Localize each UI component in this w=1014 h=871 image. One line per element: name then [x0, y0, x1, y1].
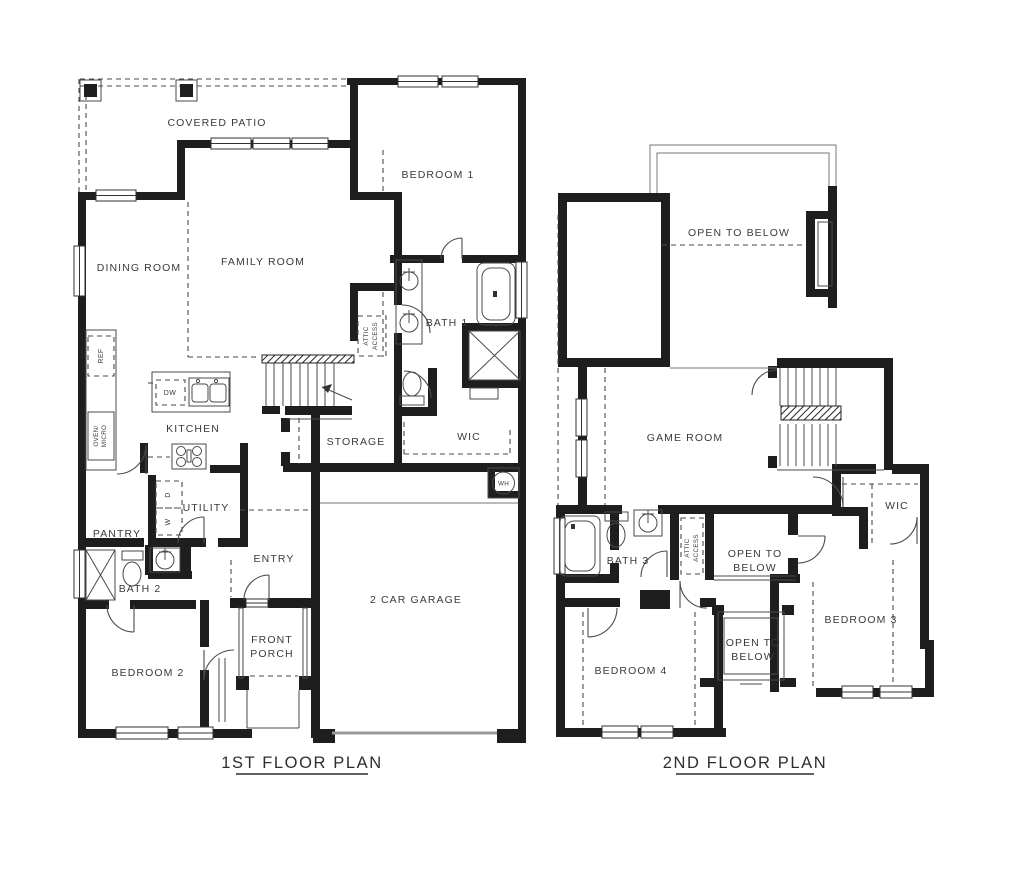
room-label-bath1: BATH 1: [426, 317, 469, 329]
window: [178, 727, 213, 739]
room-label-bedroom4: BEDROOM 4: [595, 665, 668, 677]
room-label-open-mid: OPEN TO: [728, 548, 783, 560]
room-label-bath3: BATH 3: [607, 555, 650, 567]
patio-post: [84, 84, 97, 97]
window: [576, 399, 587, 436]
room-label-front-porch: FRONT: [251, 634, 293, 646]
room-label-front-porch: PORCH: [250, 648, 293, 660]
second-floor-title: 2ND FLOOR PLAN: [663, 754, 828, 774]
room-label-utility: UTILITY: [183, 502, 230, 514]
window: [292, 138, 328, 149]
room-label-bath2: BATH 2: [119, 583, 162, 595]
attic-access-label: ACCESS: [372, 322, 379, 350]
room-label-family: FAMILY ROOM: [221, 256, 305, 268]
room-label-open-mid: BELOW: [733, 562, 776, 574]
room-label-entry: ENTRY: [254, 553, 295, 565]
dw-label: DW: [164, 390, 176, 397]
attic-access-label: ATTIC: [684, 538, 691, 557]
window: [442, 76, 478, 87]
floor-plan-canvas: ATTIC ACCESS REF OVEN/ MICRO DW: [0, 0, 1014, 866]
attic-access-label: ATTIC: [363, 326, 370, 345]
window: [74, 550, 85, 598]
ref-label: REF: [98, 348, 105, 363]
room-label-storage: STORAGE: [327, 436, 386, 448]
patio-post: [180, 84, 193, 97]
room-label-pantry: PANTRY: [93, 528, 141, 540]
washer-label: W: [165, 518, 172, 525]
window: [641, 726, 673, 738]
room-label-bedroom1: BEDROOM 1: [402, 169, 475, 181]
floor-plan-document: ATTIC ACCESS REF OVEN/ MICRO DW: [0, 0, 1014, 866]
window: [398, 76, 438, 87]
room-label-dining: DINING ROOM: [97, 262, 181, 274]
room-label-bedroom2: BEDROOM 2: [112, 667, 185, 679]
window: [880, 686, 912, 698]
first-floor-title: 1ST FLOOR PLAN: [221, 754, 382, 774]
plan-title-second: 2ND FLOOR PLAN: [663, 754, 828, 772]
wh-label: WH: [498, 481, 509, 488]
window: [253, 138, 290, 149]
room-label-open-bottom: BELOW: [731, 651, 774, 663]
window: [576, 440, 587, 477]
window: [842, 686, 873, 698]
dryer-label: D: [165, 492, 172, 497]
window: [96, 190, 136, 201]
attic-access-label: ACCESS: [693, 534, 700, 562]
room-label-kitchen: KITCHEN: [166, 423, 220, 435]
room-label-wic: WIC: [457, 431, 481, 443]
plan-title-first: 1ST FLOOR PLAN: [221, 754, 382, 772]
oven-label: OVEN/: [93, 425, 100, 446]
oven-label: MICRO: [101, 425, 108, 448]
room-label-open-bottom: OPEN TO: [726, 637, 781, 649]
window: [246, 599, 268, 607]
room-label-garage: 2 CAR GARAGE: [370, 594, 462, 606]
window: [211, 138, 251, 149]
room-label-game-room: GAME ROOM: [647, 432, 723, 444]
room-label-bedroom3: BEDROOM 3: [825, 614, 898, 626]
room-label-wic2: WIC: [885, 500, 909, 512]
room-label-open-below-top: OPEN TO BELOW: [688, 227, 790, 239]
room-label-covered-patio: COVERED PATIO: [167, 117, 266, 129]
window: [116, 727, 168, 739]
window: [602, 726, 638, 738]
window: [74, 246, 85, 296]
window: [516, 262, 527, 318]
